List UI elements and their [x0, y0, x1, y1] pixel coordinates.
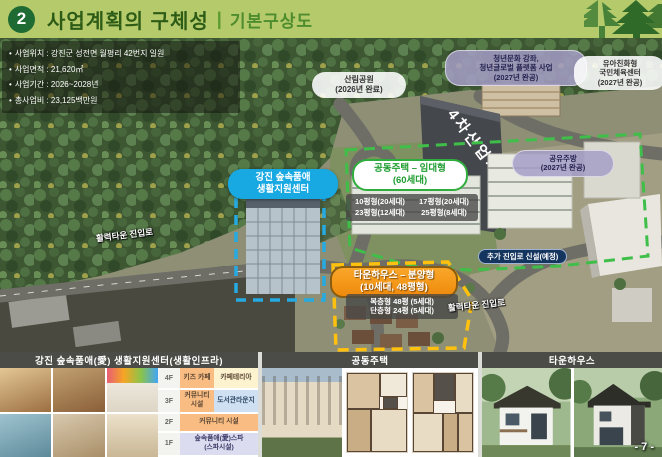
info-budget: •총사업비 : 23,125백만원 [9, 93, 233, 109]
new-access-road-label: 추가 진입로 신설(예정) [478, 249, 567, 264]
photo-lounge [53, 414, 104, 457]
townhouse-photo-1 [482, 368, 571, 457]
photo-kitchen [53, 368, 104, 412]
floor-program-table: 4F 키즈 카페 카페테리아 3F 커뮤니티 시설 도서관라운지 2F 커뮤니티… [158, 368, 258, 457]
table-row-3f: 3F 커뮤니티 시설 도서관라운지 [158, 390, 258, 414]
townhouse-illustration-1 [482, 368, 571, 457]
floorplan-small [346, 372, 408, 453]
apartment-unit-mix: 10평형(20세대) 17평형(20세대) 23평형(12세대) 25평형(8세… [346, 194, 478, 221]
page-title: 사업계획의 구체성 [47, 5, 209, 34]
photo-kids-cafe [107, 368, 158, 412]
table-row-2f: 2F 커뮤니티 시설 [158, 414, 258, 433]
youth-program-label: 청년문화 강좌, 청년글로벌 플랫폼 사업 (2027년 완공) [445, 50, 587, 86]
info-location: •사업위치 : 강진군 성전면 월평리 42번지 일원 [9, 46, 233, 62]
photo-hallway [0, 368, 51, 412]
child-sports-center-label: 유아친화형 국민체육센터 (2027년 완공) [574, 56, 662, 90]
site-plan-map: 4차산업지원센터 [0, 38, 662, 352]
panel-living-support-center: 강진 숲속품애(愛) 생활지원센터(생활인프라) 4F 키즈 카페 카페테리아 [0, 352, 258, 457]
info-period: •사업기간 : 2026~2028년 [9, 77, 233, 93]
forest-park-label: 산림공원 (2026년 완료) [312, 72, 406, 98]
map-label-overlay: •사업위치 : 강진군 성전면 월평리 42번지 일원 •사업면적 : 21,6… [0, 38, 662, 352]
page-number: - 7 - [634, 441, 654, 453]
panel-title-apartment: 공동주택 [262, 352, 478, 368]
panel-title-infra: 강진 숲속품애(愛) 생활지원센터(생활인프라) [0, 352, 258, 368]
bottom-panels: 강진 숲속품애(愛) 생활지원센터(생활인프라) 4F 키즈 카페 카페테리아 [0, 352, 662, 457]
support-center-label: 강진 숲속품애 생활지원센터 [228, 169, 338, 199]
photo-spa [0, 414, 51, 457]
project-info-box: •사업위치 : 강진군 성전면 월평리 42번지 일원 •사업면적 : 21,6… [2, 41, 240, 113]
section-number-badge: 2 [8, 6, 35, 33]
apartment-exterior-photo [262, 368, 342, 457]
page-subtitle: 기본구상도 [230, 7, 313, 32]
title-divider: | [217, 9, 222, 30]
photo-cafeteria [107, 414, 158, 457]
panel-apartment: 공동주택 [262, 352, 478, 457]
floorplan-large [412, 372, 474, 453]
table-row-4f: 4F 키즈 카페 카페테리아 [158, 368, 258, 390]
apartment-floorplans [342, 368, 478, 457]
panel-title-townhouse: 타운하우스 [482, 352, 662, 368]
info-area: •사업면적 : 21,620㎡ [9, 62, 233, 78]
townhouse-label: 타운하우스 – 분양형 (10세대, 48평형) [330, 266, 458, 298]
shared-kitchen-label: 공유주방 (2027년 완공) [512, 150, 614, 177]
townhouse-unit-mix: 복층형 48평 (5세대) 단층형 24평 (5세대) [346, 294, 458, 319]
panel-townhouse: 타운하우스 [482, 352, 662, 457]
header-band: 2 사업계획의 구체성 | 기본구상도 [0, 0, 662, 38]
pine-trees-icon [584, 0, 662, 38]
apartment-label: 공동주택 – 임대형 (60세대) [352, 159, 468, 191]
table-row-1f: 1F 숲속품애(愛)스파 (스파시설) [158, 433, 258, 457]
interior-photo-collage [0, 368, 158, 457]
slide: 2 사업계획의 구체성 | 기본구상도 [0, 0, 662, 457]
access-road-left-label: 활력타운 진입로 [96, 227, 154, 245]
